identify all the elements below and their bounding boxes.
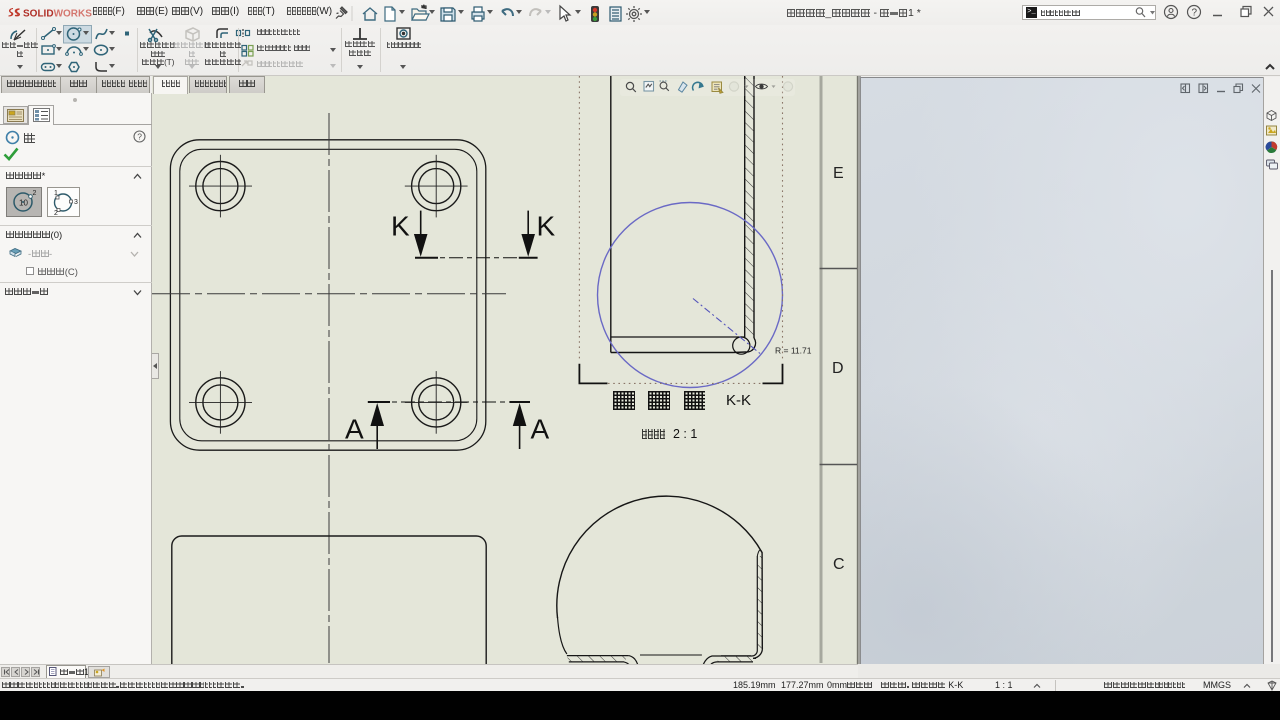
svg-text:2: 2 [33, 190, 37, 197]
svg-text:A: A [531, 414, 550, 445]
svg-text:A: A [345, 414, 364, 445]
svg-text:2: 2 [54, 210, 58, 217]
svg-text:K: K [537, 211, 556, 242]
svg-text:K: K [391, 211, 410, 242]
svg-text:10: 10 [19, 199, 28, 208]
svg-text:D: D [832, 360, 844, 377]
svg-text:C: C [833, 556, 845, 573]
svg-text:1: 1 [54, 190, 58, 197]
svg-text:?: ? [1192, 8, 1198, 19]
svg-text:?: ? [137, 132, 142, 142]
svg-text:E: E [833, 165, 844, 182]
svg-text:3: 3 [74, 199, 78, 206]
svg-text:SOLIDWORKS: SOLIDWORKS [23, 9, 92, 20]
svg-text:R = 11.71: R = 11.71 [775, 346, 812, 356]
